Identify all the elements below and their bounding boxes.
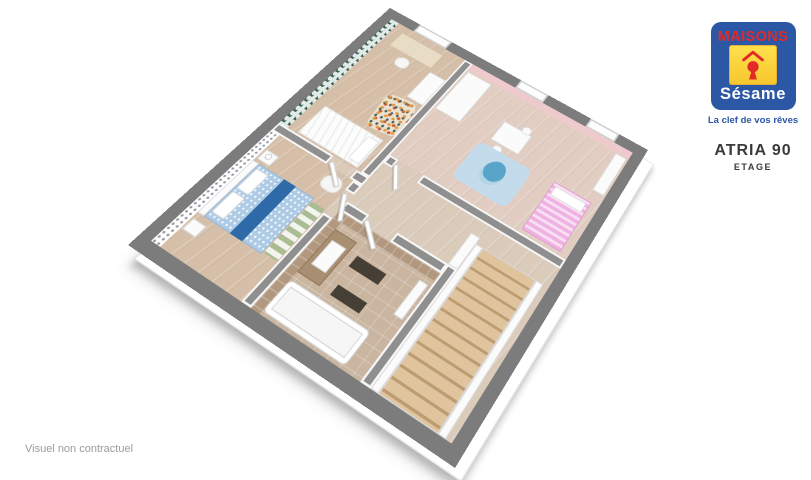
- floorplan-3d-view: [0, 0, 811, 480]
- door-kids: [393, 164, 399, 190]
- plan-title: ATRIA 90 ETAGE: [714, 142, 791, 172]
- brand-block: MAISONS Sésame La clef de vos rêves ATRI…: [701, 22, 805, 172]
- plan-model-name: ATRIA 90: [714, 142, 791, 160]
- logo-emblem: [729, 45, 777, 85]
- floorplan: [128, 8, 648, 468]
- brand-name-top: MAISONS: [718, 29, 788, 45]
- plan-level: ETAGE: [714, 162, 791, 172]
- disclaimer-text: Visuel non contractuel: [25, 443, 133, 455]
- brand-name-bottom: Sésame: [720, 85, 786, 104]
- page: MAISONS Sésame La clef de vos rêves ATRI…: [0, 0, 811, 480]
- logo: MAISONS Sésame: [711, 22, 796, 110]
- keyhole-house-icon: [734, 48, 772, 82]
- brand-tagline: La clef de vos rêves: [708, 115, 798, 126]
